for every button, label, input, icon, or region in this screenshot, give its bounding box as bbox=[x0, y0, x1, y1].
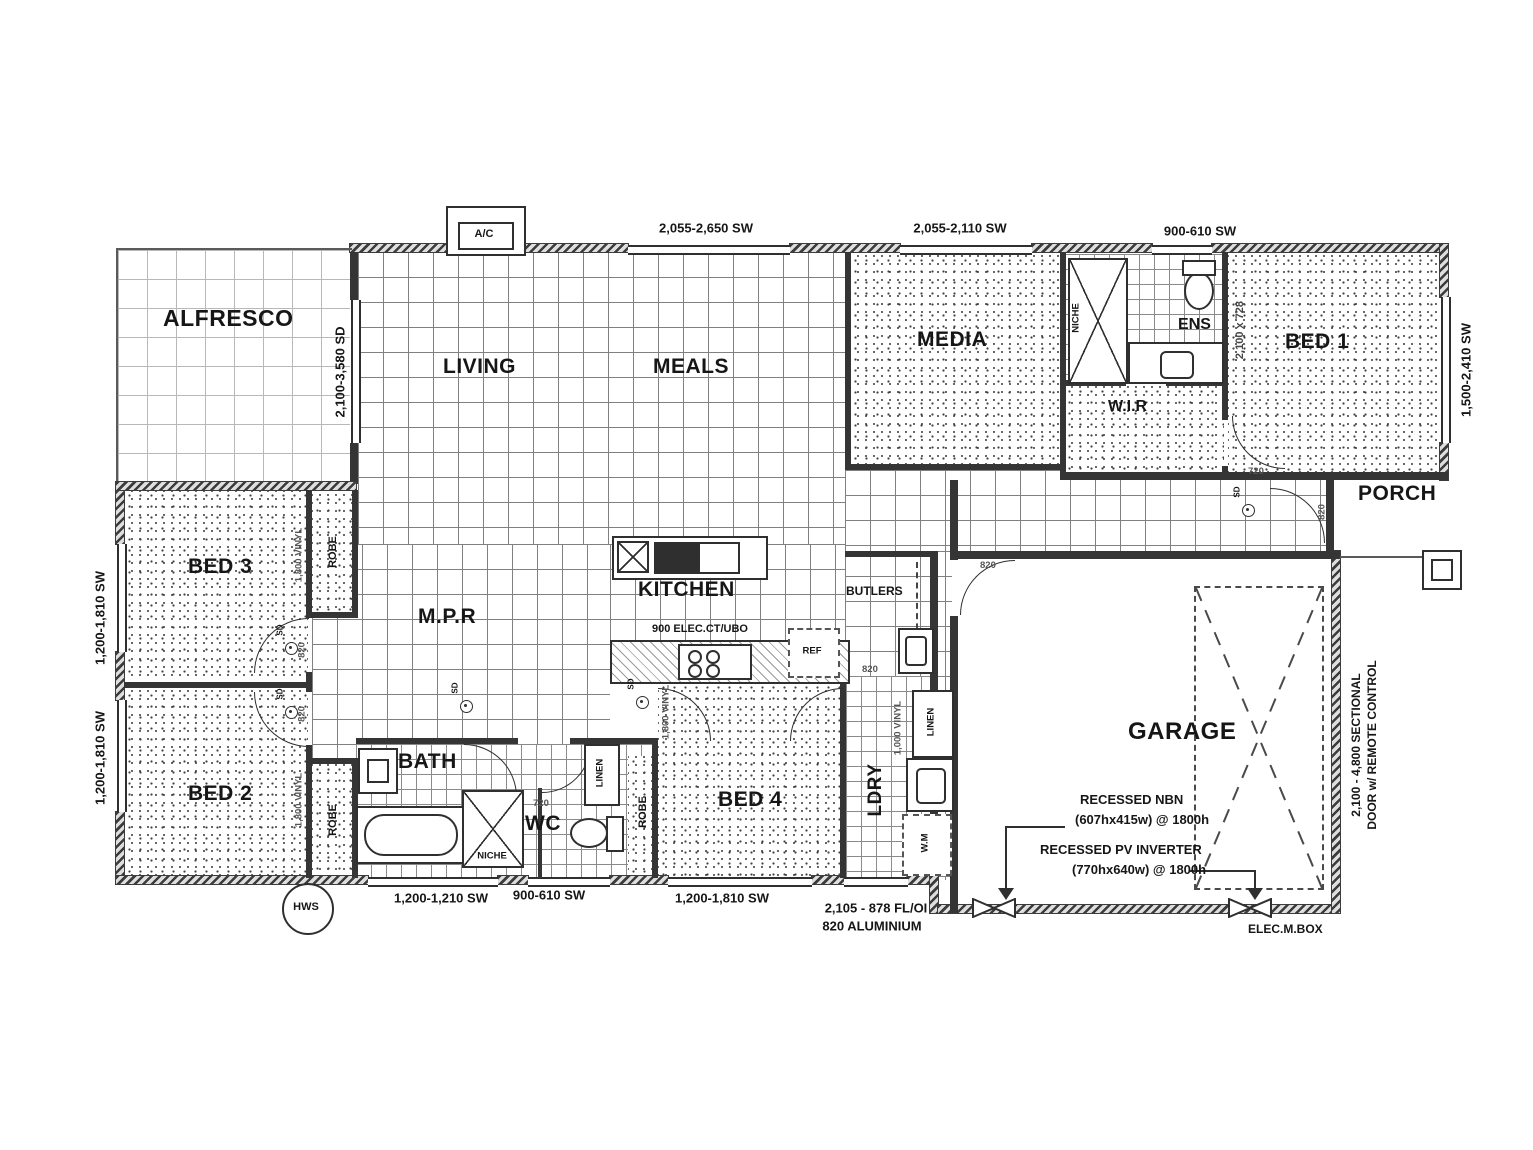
wall-alfresco-living-2 bbox=[350, 443, 358, 484]
dim-820-bed2: 820 bbox=[297, 706, 308, 722]
wall-bed1-left-1 bbox=[1222, 252, 1228, 420]
dim-right-bed1: 1,500-2,410 SW bbox=[1459, 323, 1474, 417]
wall-bottom-3 bbox=[610, 876, 668, 884]
robe-bed2-vinyl: 1,800 VINYL bbox=[294, 773, 305, 827]
wall-bed3-top bbox=[116, 482, 356, 490]
wc-linen-label: LINEN bbox=[595, 759, 606, 788]
butlers-sink bbox=[898, 628, 934, 674]
annotation-pv-1: RECESSED PV INVERTER bbox=[1040, 842, 1202, 857]
room-label-media: MEDIA bbox=[917, 328, 987, 352]
window-living bbox=[628, 245, 790, 255]
wall-alfresco-living-1 bbox=[350, 252, 358, 300]
wall-media-bottom bbox=[845, 464, 1066, 470]
dim-820-hall: 820 bbox=[862, 664, 878, 675]
window-bed1 bbox=[1441, 297, 1451, 443]
wall-left-1 bbox=[116, 482, 124, 544]
garage-door-panel-left bbox=[972, 898, 1016, 918]
hws-label: HWS bbox=[293, 901, 319, 913]
door-ldry-glass bbox=[844, 877, 908, 887]
wall-bed3-right bbox=[306, 490, 312, 618]
sd-mpr bbox=[460, 700, 473, 713]
wall-ens-left bbox=[1060, 252, 1066, 474]
dim-top-ens: 900-610 SW bbox=[1164, 224, 1236, 239]
elec-box-label: ELEC.M.BOX bbox=[1248, 922, 1323, 936]
sd-entry-label: SD bbox=[1233, 486, 1242, 497]
window-wc bbox=[528, 877, 610, 887]
window-bed2 bbox=[117, 700, 127, 812]
dim-720-wc: 720 bbox=[533, 798, 549, 809]
ens-toilet bbox=[1178, 258, 1218, 314]
wall-bed2-right-1 bbox=[306, 745, 312, 878]
room-label-garage: GARAGE bbox=[1128, 718, 1236, 746]
dim-garage-door-1: 2,100 - 4,800 SECTIONAL bbox=[1349, 673, 1363, 816]
window-ens bbox=[1152, 245, 1212, 255]
sd-bed4-label: SD bbox=[627, 678, 636, 689]
wall-ldry-step bbox=[930, 876, 938, 913]
robe-bed3-vinyl: 1,800 VINYL bbox=[294, 528, 305, 582]
wall-bed4-left-1 bbox=[652, 738, 658, 878]
room-label-mpr: M.P.R bbox=[418, 605, 476, 629]
annotation-pv-2: (770hx640w) @ 1800h bbox=[1072, 862, 1206, 877]
dim-820-garage: 820 bbox=[980, 560, 996, 571]
alfresco-edge-left bbox=[116, 248, 118, 484]
porch-pier-inner bbox=[1431, 559, 1453, 581]
dim-ldry-door-2: 820 ALUMINIUM bbox=[822, 919, 921, 934]
annotation-nbn-2: (607hx415w) @ 1800h bbox=[1075, 812, 1209, 827]
dim-720-bed1: 720 bbox=[1248, 466, 1264, 477]
bath-niche-label: NICHE bbox=[477, 851, 507, 862]
kitchen-bench-label: 900 ELEC.CT/UBO bbox=[652, 623, 748, 635]
wall-bottom-1 bbox=[116, 876, 368, 884]
wall-robe2 bbox=[312, 758, 356, 764]
bathtub bbox=[356, 806, 466, 864]
hall-linen-label: LINEN bbox=[926, 708, 937, 737]
wall-top-3 bbox=[1032, 244, 1152, 252]
bath-vanity bbox=[358, 748, 398, 794]
wall-robe3 bbox=[312, 612, 356, 618]
garage-door-panel-right bbox=[1228, 898, 1272, 918]
dim-left-bed3: 1,200-1,810 SW bbox=[93, 571, 108, 665]
wall-bottom-2 bbox=[498, 876, 528, 884]
wall-top-2 bbox=[790, 244, 900, 252]
window-bath bbox=[368, 877, 498, 887]
room-label-butlers: BUTLERS bbox=[846, 584, 903, 598]
cooktop bbox=[678, 644, 752, 680]
wall-bath-top bbox=[356, 738, 518, 744]
ens-niche-label: NICHE bbox=[1071, 303, 1082, 333]
room-label-living: LIVING bbox=[443, 355, 516, 379]
dim-top-media: 2,055-2,110 SW bbox=[913, 221, 1006, 236]
dishwasher bbox=[617, 541, 649, 573]
alfresco-edge-top bbox=[116, 248, 352, 250]
robe-bed4-vinyl: 1,800 VINYL bbox=[661, 685, 672, 739]
wall-left-3 bbox=[116, 812, 124, 884]
alfresco-floor bbox=[118, 250, 350, 482]
wm-label: W.M bbox=[920, 834, 931, 853]
hall-vinyl-label: 1,000 VINYL bbox=[893, 701, 904, 755]
room-label-bed4: BED 4 bbox=[718, 788, 782, 812]
dim-top-living: 2,055-2,650 SW bbox=[659, 221, 753, 236]
wall-right-1 bbox=[1440, 244, 1448, 297]
fridge-label: REF bbox=[803, 646, 822, 657]
dim-bottom-wc: 900-610 SW bbox=[513, 888, 585, 903]
dim-820-entry: 820 bbox=[1317, 504, 1328, 520]
wall-butlers-top bbox=[845, 551, 938, 557]
sd-entry bbox=[1242, 504, 1255, 517]
ac-label: A/C bbox=[475, 228, 494, 240]
room-label-porch: PORCH bbox=[1358, 482, 1436, 506]
room-label-bed1: BED 1 bbox=[1285, 330, 1349, 354]
media-carpet bbox=[850, 255, 1062, 466]
room-label-bath: BATH bbox=[398, 750, 457, 774]
living-meals-floor bbox=[358, 252, 845, 544]
pv-leader-v bbox=[1254, 870, 1256, 890]
room-label-alfresco: ALFRESCO bbox=[163, 305, 294, 332]
dim-left-bed2: 1,200-1,810 SW bbox=[93, 711, 108, 805]
dim-ens-panel: 2,100 x 728 bbox=[1234, 301, 1246, 359]
room-label-wir: W.I.R bbox=[1108, 398, 1147, 416]
dim-bottom-bed4: 1,200-1,810 SW bbox=[675, 891, 769, 906]
sd-hall-bed3-label: SD bbox=[276, 624, 285, 635]
dim-820-bed3: 820 bbox=[297, 642, 308, 658]
sd-hall-bed2-label: SD bbox=[276, 688, 285, 699]
kitchen-sink-2 bbox=[698, 542, 740, 574]
dim-bottom-bath: 1,200-1,210 SW bbox=[394, 891, 488, 906]
dim-ldry-door-1: 2,105 - 878 FL/OI bbox=[825, 901, 928, 916]
dim-garage-door-2: DOOR w/ REMOTE CONTROL bbox=[1365, 660, 1379, 829]
robe-bed2-label: ROBE bbox=[327, 804, 339, 836]
room-label-wc: WC bbox=[525, 812, 561, 836]
room-label-ens: ENS bbox=[1178, 316, 1211, 334]
room-label-bed2: BED 2 bbox=[188, 782, 252, 806]
room-label-ldry: LDRY bbox=[865, 763, 887, 816]
dim-alfresco-sd: 2,100-3,580 SD bbox=[333, 326, 348, 417]
robe-bed4-label: ROBE bbox=[637, 796, 649, 828]
kitchen-sink-1 bbox=[654, 542, 698, 574]
sd-mpr-label: SD bbox=[451, 682, 460, 693]
wall-garage-top bbox=[950, 551, 1340, 559]
wall-top-4 bbox=[1212, 244, 1448, 252]
sd-bed4 bbox=[636, 696, 649, 709]
wall-media-left bbox=[845, 252, 851, 470]
window-bed3 bbox=[117, 544, 127, 652]
ldry-tub bbox=[906, 758, 954, 812]
wc-toilet bbox=[566, 812, 626, 854]
room-label-kitchen: KITCHEN bbox=[638, 578, 735, 602]
sliding-door-alfresco bbox=[351, 300, 361, 443]
room-label-bed3: BED 3 bbox=[188, 555, 252, 579]
window-media bbox=[900, 245, 1032, 255]
annotation-nbn-1: RECESSED NBN bbox=[1080, 792, 1183, 807]
floor-plan: REF 900 ELEC.CT/UBO NICHE LINEN NICHE LI… bbox=[0, 0, 1533, 1150]
room-label-meals: MEALS bbox=[653, 355, 729, 379]
nbn-leader-h bbox=[1005, 826, 1065, 828]
wall-bed23-divider bbox=[124, 682, 312, 688]
wall-left-2 bbox=[116, 652, 124, 700]
wall-garage-right bbox=[1332, 551, 1340, 913]
window-bed4 bbox=[668, 877, 812, 887]
nbn-leader-v bbox=[1005, 826, 1007, 888]
ens-vanity bbox=[1128, 342, 1224, 384]
robe-bed3-label: ROBE bbox=[327, 536, 339, 568]
wall-hall-garage-1 bbox=[950, 480, 958, 560]
wall-robe3-right bbox=[352, 490, 358, 618]
